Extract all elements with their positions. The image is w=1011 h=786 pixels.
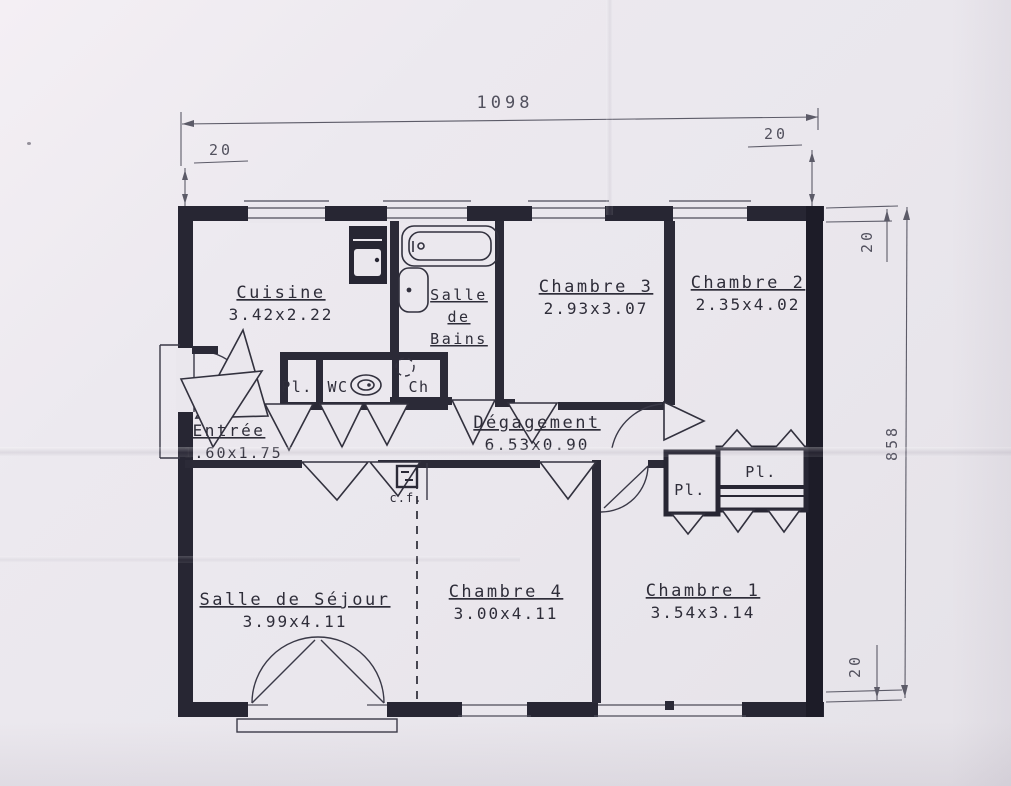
paper-shadow-right bbox=[951, 0, 1011, 786]
label-placard-hall: Pl. bbox=[281, 378, 313, 396]
size-chambre2: 2.35x4.02 bbox=[696, 295, 801, 314]
label-closet-small-right: Pl. bbox=[674, 481, 706, 499]
size-chambre4: 3.00x4.11 bbox=[454, 604, 559, 623]
label-cuisine: Cuisine bbox=[236, 283, 325, 303]
wall-chambre1-west bbox=[592, 460, 601, 703]
label-flue: c.f. bbox=[390, 491, 423, 505]
wall-row-top bbox=[280, 352, 445, 360]
label-wc: WC bbox=[327, 378, 348, 396]
wall-right bbox=[806, 206, 823, 717]
window-chambre3 bbox=[528, 201, 609, 223]
door-chambre4 bbox=[540, 462, 596, 499]
dim-overall-width: 1098 bbox=[477, 93, 534, 113]
label-sdb-line2: de bbox=[447, 308, 470, 326]
size-sejour: 3.99x4.11 bbox=[243, 612, 348, 631]
size-chambre1: 3.54x3.14 bbox=[651, 603, 756, 622]
dim-right-top-20: 20 bbox=[858, 229, 876, 253]
size-cuisine: 3.42x2.22 bbox=[229, 305, 334, 324]
door-chambre2 bbox=[664, 402, 704, 440]
dim-right-bottom-20: 20 bbox=[846, 654, 864, 678]
label-entree: Entrée bbox=[193, 421, 266, 440]
label-sdb-line1: Salle bbox=[430, 286, 488, 304]
paper-fold-crease bbox=[0, 447, 1011, 457]
paper-fold-crease-vertical bbox=[606, 0, 613, 215]
label-ch: Ch bbox=[408, 378, 429, 396]
label-chambre3: Chambre 3 bbox=[539, 277, 654, 297]
wall-chambre3-chambre2 bbox=[664, 221, 675, 405]
floor-plan-drawing: Cuisine 3.42x2.22 Salle de Bains Chambre… bbox=[0, 0, 1011, 786]
label-chambre1: Chambre 1 bbox=[646, 581, 761, 601]
window-mullion bbox=[665, 701, 674, 710]
size-chambre3: 2.93x3.07 bbox=[544, 299, 649, 318]
window-chambre2 bbox=[669, 201, 751, 223]
label-chambre4: Chambre 4 bbox=[449, 582, 564, 602]
window-cuisine bbox=[244, 201, 329, 223]
dim-top-right-20: 20 bbox=[764, 125, 788, 143]
paper-fold-crease-2 bbox=[0, 556, 520, 563]
label-sdb-line3: Bains bbox=[430, 330, 488, 348]
wall-cuisine-sdb bbox=[390, 221, 399, 352]
dim-top-left-20: 20 bbox=[209, 141, 233, 159]
paper-shadow-bottom bbox=[0, 722, 1011, 786]
window-chambre4 bbox=[458, 700, 531, 719]
bathtub bbox=[402, 226, 498, 266]
washbasin bbox=[399, 268, 428, 312]
paper-speck bbox=[27, 142, 31, 145]
wall-sdb-chambre3 bbox=[495, 221, 504, 405]
window-chambre1 bbox=[594, 700, 746, 719]
scanned-floor-plan-page: Cuisine 3.42x2.22 Salle de Bains Chambre… bbox=[0, 0, 1011, 786]
french-door-sejour bbox=[237, 637, 397, 732]
label-sejour: Salle de Séjour bbox=[199, 590, 390, 610]
door-ch bbox=[365, 404, 408, 445]
wall-entree-stub bbox=[192, 346, 218, 354]
toilet bbox=[351, 375, 381, 395]
kitchen-sink bbox=[349, 226, 387, 284]
fixtures bbox=[349, 226, 498, 500]
door-sejour bbox=[302, 462, 368, 500]
label-closet-large-right: Pl. bbox=[745, 463, 777, 481]
door-wc bbox=[320, 404, 363, 447]
label-chambre2: Chambre 2 bbox=[691, 273, 806, 293]
label-degagement: Dégagement bbox=[473, 413, 600, 433]
window-salle-de-bains bbox=[383, 201, 471, 223]
